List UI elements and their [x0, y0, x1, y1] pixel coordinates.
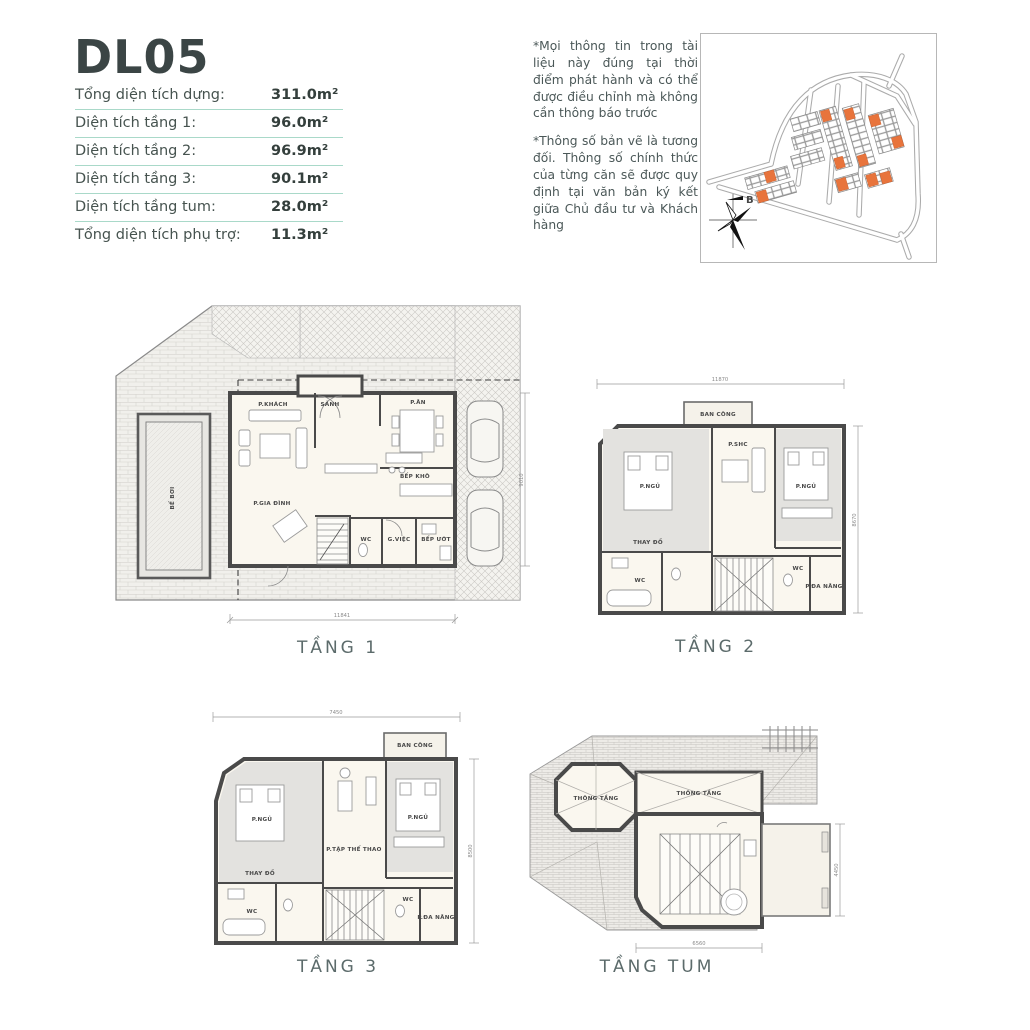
table-row: Tổng diện tích phụ trợ: 11.3m²	[75, 222, 343, 249]
dim-value: 11870	[712, 377, 729, 383]
room-label: P.ĐA NĂNG	[417, 914, 454, 921]
room-label: P.GIA ĐÌNH	[253, 499, 290, 507]
room-label: WC	[403, 897, 414, 903]
area-value: 28.0m²	[271, 199, 343, 215]
table-row: Tổng diện tích dựng: 311.0m²	[75, 82, 343, 110]
room-label: WC	[793, 566, 804, 572]
disclaimer-text: *Mọi thông tin trong tài liệu này đúng t…	[533, 38, 698, 245]
car-icon	[467, 490, 503, 566]
site-location-map: B	[700, 33, 937, 263]
room-label: BAN CÔNG	[397, 742, 433, 749]
dim-value: 11841	[334, 613, 351, 619]
stairs	[326, 890, 384, 940]
dim-value: 7450	[329, 710, 342, 716]
room-label: P.NGỦ	[408, 813, 429, 821]
entrance-porch	[298, 376, 362, 396]
dim-value: 6560	[692, 941, 705, 947]
room-label: P.TẬP THỂ THAO	[326, 845, 381, 853]
area-value: 11.3m²	[271, 227, 343, 243]
room-label: P.ĐA NĂNG	[805, 583, 842, 590]
room-label: P.KHÁCH	[258, 401, 287, 408]
room-label: WC	[635, 578, 646, 584]
area-value: 311.0m²	[271, 87, 343, 103]
room-label: P.SHC	[728, 442, 748, 448]
compass-north-icon: B	[709, 194, 757, 250]
area-value: 96.0m²	[271, 115, 343, 131]
plan-caption-tang3: TẦNG 3	[228, 957, 448, 977]
area-label: Tổng diện tích phụ trợ:	[75, 227, 271, 243]
room-label: SẢNH	[321, 400, 340, 408]
car-icon	[467, 401, 503, 477]
room-label: WC	[247, 909, 258, 915]
dim-value: 9010	[519, 473, 525, 486]
unit-code-title: DL05	[74, 30, 210, 84]
stairwell-void: THÔNG TẦNG	[636, 772, 762, 814]
room-label: P.ĂN	[410, 399, 425, 406]
area-value: 90.1m²	[271, 171, 343, 187]
room-label: P.NGỦ	[796, 482, 817, 490]
room-label: BẾP ƯỚT	[421, 535, 451, 543]
room-label: BAN CÔNG	[700, 411, 736, 418]
area-label: Diện tích tầng tum:	[75, 199, 271, 215]
disclaimer-para-2: *Thông số bản vẽ là tương đối. Thông số …	[533, 133, 698, 234]
tangtum-floorplan: THÔNG TẦNG THÔNG TẦNG 6560 4450	[512, 712, 852, 967]
table-row: Diện tích tầng tum: 28.0m²	[75, 194, 343, 222]
tang1-floorplan: BỂ BƠI	[100, 298, 530, 638]
area-label: Diện tích tầng 3:	[75, 171, 271, 187]
table-row: Diện tích tầng 3: 90.1m²	[75, 166, 343, 194]
site-map-drawing: B	[701, 34, 936, 262]
area-table: Tổng diện tích dựng: 311.0m² Diện tích t…	[75, 82, 343, 249]
room-label: WC	[361, 537, 372, 543]
table-row: Diện tích tầng 2: 96.9m²	[75, 138, 343, 166]
room-label: G.VIỆC	[388, 535, 411, 543]
plan-caption-tangtum: TẦNG TUM	[547, 957, 767, 977]
tang2-floorplan: 11870 BAN CÔNG P.NGỦ P.SHC P.NGỦ THAY Đ	[572, 368, 872, 633]
room-label: P.NGỦ	[640, 482, 661, 490]
room-label-pool: BỂ BƠI	[168, 486, 176, 509]
area-label: Diện tích tầng 1:	[75, 115, 271, 131]
dim-value: 8670	[852, 513, 858, 526]
compass-label: B	[746, 195, 754, 206]
dim-value: 4450	[834, 863, 840, 876]
tang3-floorplan: 7450 BAN CÔNG P.NGỦ P.TẬP THỂ THAO P	[188, 703, 488, 963]
area-label: Tổng diện tích dựng:	[75, 87, 271, 103]
disclaimer-para-1: *Mọi thông tin trong tài liệu này đúng t…	[533, 38, 698, 122]
table-row: Diện tích tầng 1: 96.0m²	[75, 110, 343, 138]
plan-caption-tang1: TẦNG 1	[228, 638, 448, 658]
swimming-pool: BỂ BƠI	[138, 414, 210, 578]
terrace	[762, 824, 830, 916]
area-value: 96.9m²	[271, 143, 343, 159]
plan-caption-tang2: TẦNG 2	[606, 637, 826, 657]
room-label: BẾP KHÔ	[400, 472, 430, 480]
stairs	[715, 558, 773, 611]
room-label: P.NGỦ	[252, 815, 273, 823]
tower-void: THÔNG TẦNG	[556, 764, 636, 830]
tum-room	[636, 814, 762, 927]
dim-value: 8500	[468, 844, 474, 857]
stairs	[317, 518, 348, 564]
area-label: Diện tích tầng 2:	[75, 143, 271, 159]
